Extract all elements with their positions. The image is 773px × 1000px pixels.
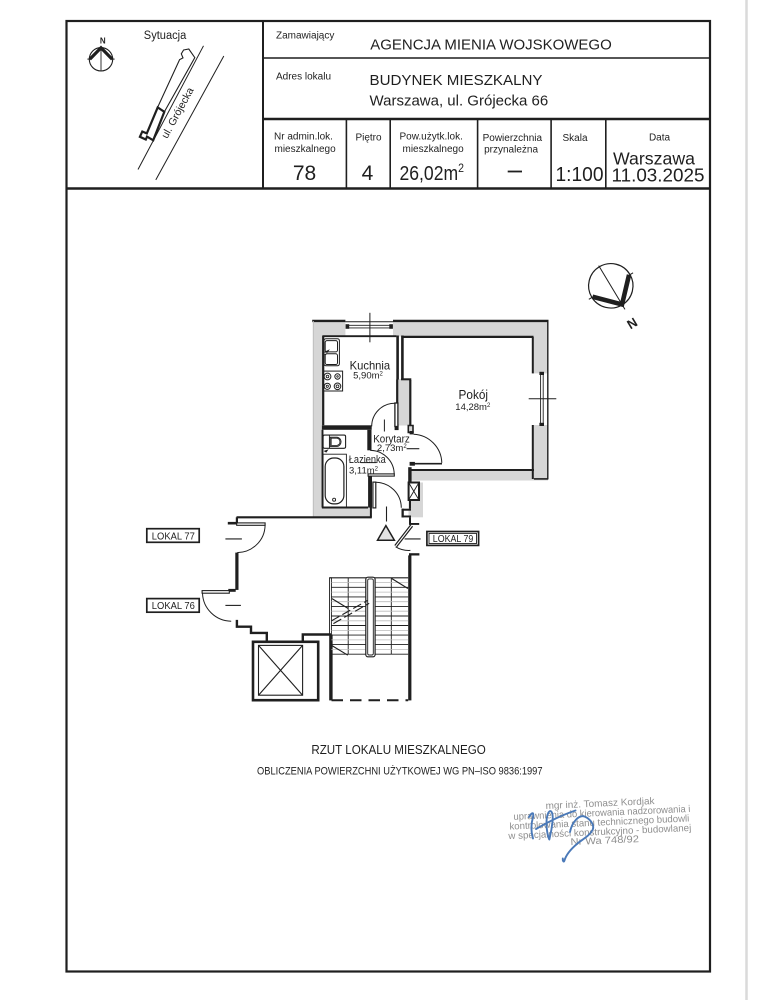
svg-text:mieszkalnego: mieszkalnego bbox=[403, 144, 465, 155]
svg-text:BUDYNEK MIESZKALNY: BUDYNEK MIESZKALNY bbox=[370, 73, 543, 89]
svg-text:1:100: 1:100 bbox=[556, 163, 604, 186]
svg-text:OBLICZENIA POWIERZCHNI UŻYTK: OBLICZENIA POWIERZCHNI UŻYTKOWEJ WG PN–I… bbox=[257, 764, 543, 777]
svg-text:Warszawa, ul. Grójecka 66: Warszawa, ul. Grójecka 66 bbox=[370, 94, 549, 110]
svg-text:Skala: Skala bbox=[562, 133, 587, 144]
svg-text:AGENCJA MIENIA WOJSKOWEGO: AGENCJA MIENIA WOJSKOWEGO bbox=[370, 38, 612, 54]
svg-text:Sytuacja: Sytuacja bbox=[144, 30, 187, 42]
svg-text:Zamawiający: Zamawiający bbox=[276, 31, 334, 42]
svg-text:Pokój: Pokój bbox=[459, 388, 489, 402]
svg-text:Pow.użytk.lok.: Pow.użytk.lok. bbox=[400, 132, 463, 143]
svg-text:Łazienka: Łazienka bbox=[349, 454, 387, 466]
svg-text:Powierzchnia: Powierzchnia bbox=[483, 133, 543, 144]
svg-text:4: 4 bbox=[362, 162, 374, 185]
svg-text:11.03.2025: 11.03.2025 bbox=[612, 165, 705, 186]
svg-text:Piętro: Piętro bbox=[355, 133, 382, 144]
svg-text:26,02m2: 26,02m2 bbox=[400, 161, 465, 185]
svg-text:LOKAL 77: LOKAL 77 bbox=[152, 531, 195, 542]
svg-text:5,90m2: 5,90m2 bbox=[353, 370, 383, 381]
svg-text:Data: Data bbox=[649, 133, 671, 144]
svg-text:LOKAL 76: LOKAL 76 bbox=[152, 601, 195, 612]
svg-text:mieszkalnego: mieszkalnego bbox=[275, 144, 337, 155]
svg-text:2,73m2: 2,73m2 bbox=[377, 443, 407, 454]
svg-text:N: N bbox=[624, 315, 640, 333]
svg-text:przynależna: przynależna bbox=[484, 145, 538, 156]
svg-text:3,11m2: 3,11m2 bbox=[349, 465, 379, 476]
svg-text:Nr admin.lok.: Nr admin.lok. bbox=[274, 132, 333, 143]
svg-text:LOKAL 79: LOKAL 79 bbox=[433, 534, 474, 545]
svg-text:RZUT LOKALU MIESZKALNEGO: RZUT LOKALU MIESZKALNEGO bbox=[311, 742, 486, 757]
svg-text:N: N bbox=[100, 36, 106, 45]
svg-text:14,28m2: 14,28m2 bbox=[455, 402, 491, 413]
svg-text:Adres lokalu: Adres lokalu bbox=[276, 72, 331, 83]
svg-text:78: 78 bbox=[293, 162, 316, 185]
